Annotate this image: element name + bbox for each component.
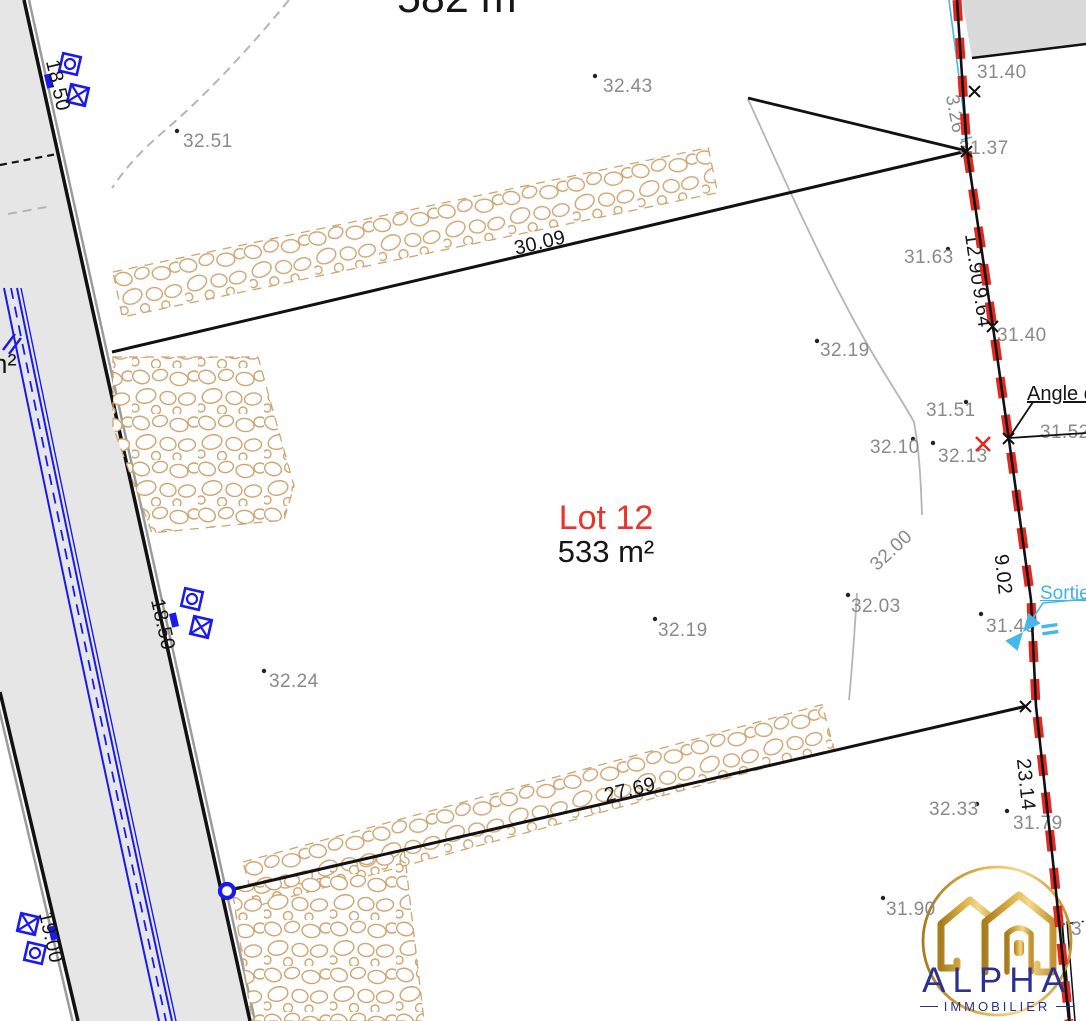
logo-tagline: IMMOBILIER — [917, 999, 1077, 1014]
elevation-label: 31.40 — [977, 62, 1027, 84]
elevation-label: 32.33 — [929, 799, 979, 821]
logo-brand-text: ALPHA — [917, 961, 1077, 1001]
elevation-label: 31.51 — [926, 400, 976, 422]
manhole-cross-icon — [190, 616, 212, 638]
angle-annotation: Angle de — [1027, 383, 1086, 406]
elevation-label: 31.90 — [886, 899, 936, 921]
lot12-area: 533 m² — [536, 534, 676, 570]
tagline-dash — [920, 1006, 938, 1007]
elevation-label: 31.52 — [1040, 422, 1086, 444]
elevation-label: 31.46 — [986, 616, 1036, 638]
elevation-label: 32.19 — [658, 620, 708, 642]
tagline-dash — [1056, 1006, 1074, 1007]
elevation-label: 32.43 — [603, 76, 653, 98]
lot12-title: Lot 12 — [536, 499, 676, 538]
tagline-text: IMMOBILIER — [944, 999, 1051, 1014]
elevation-label: 32.03 — [851, 596, 901, 618]
building — [962, 0, 1086, 58]
left-area-fragment: m² — [0, 349, 16, 380]
cadastral-plan: 582 m² m² 3 Lot 12 533 m² 30.09 27.69 12… — [0, 0, 1086, 1021]
logo-keyhole — [1014, 940, 1024, 956]
elevation-label: 31.79 — [1013, 813, 1063, 835]
elevation-label: 32.19 — [820, 340, 870, 362]
elevation-label: 32.51 — [183, 131, 233, 153]
elevation-label: 32.10 — [870, 437, 920, 459]
elevation-label: 31.40 — [997, 325, 1047, 347]
sortie-annotation: Sortie — [1040, 583, 1086, 605]
elevation-label: 32.24 — [269, 671, 319, 693]
dim-right-3: 9.02 — [989, 553, 1016, 596]
manhole-circle-icon — [181, 588, 203, 610]
hydrant-circle-icon — [220, 884, 234, 898]
lot11-area-label: 582 m² — [397, 0, 531, 23]
elevation-label: 31.37 — [959, 138, 1009, 160]
elevation-label: 31.63 — [904, 247, 954, 269]
edge-number-fragment: 3 — [1071, 919, 1082, 941]
elevation-label: 32.13 — [938, 446, 988, 468]
